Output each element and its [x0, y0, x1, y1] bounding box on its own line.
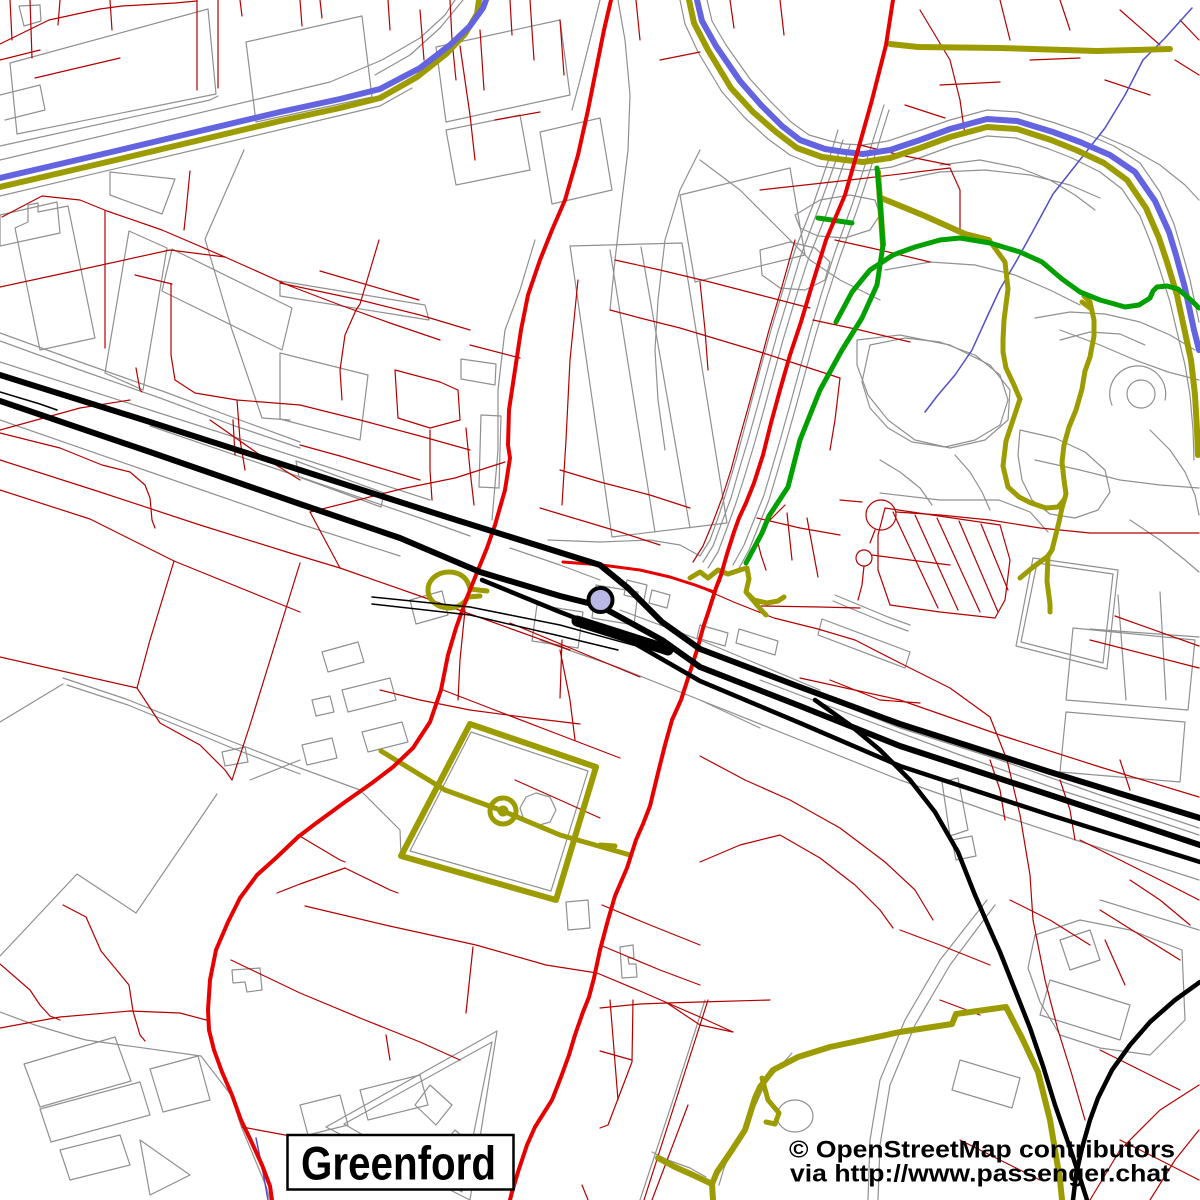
svg-text:via http://www.passenger.chat: via http://www.passenger.chat: [790, 1161, 1170, 1188]
svg-text:© OpenStreetMap contributors: © OpenStreetMap contributors: [789, 1137, 1175, 1164]
svg-text:Greenford: Greenford: [301, 1137, 496, 1190]
